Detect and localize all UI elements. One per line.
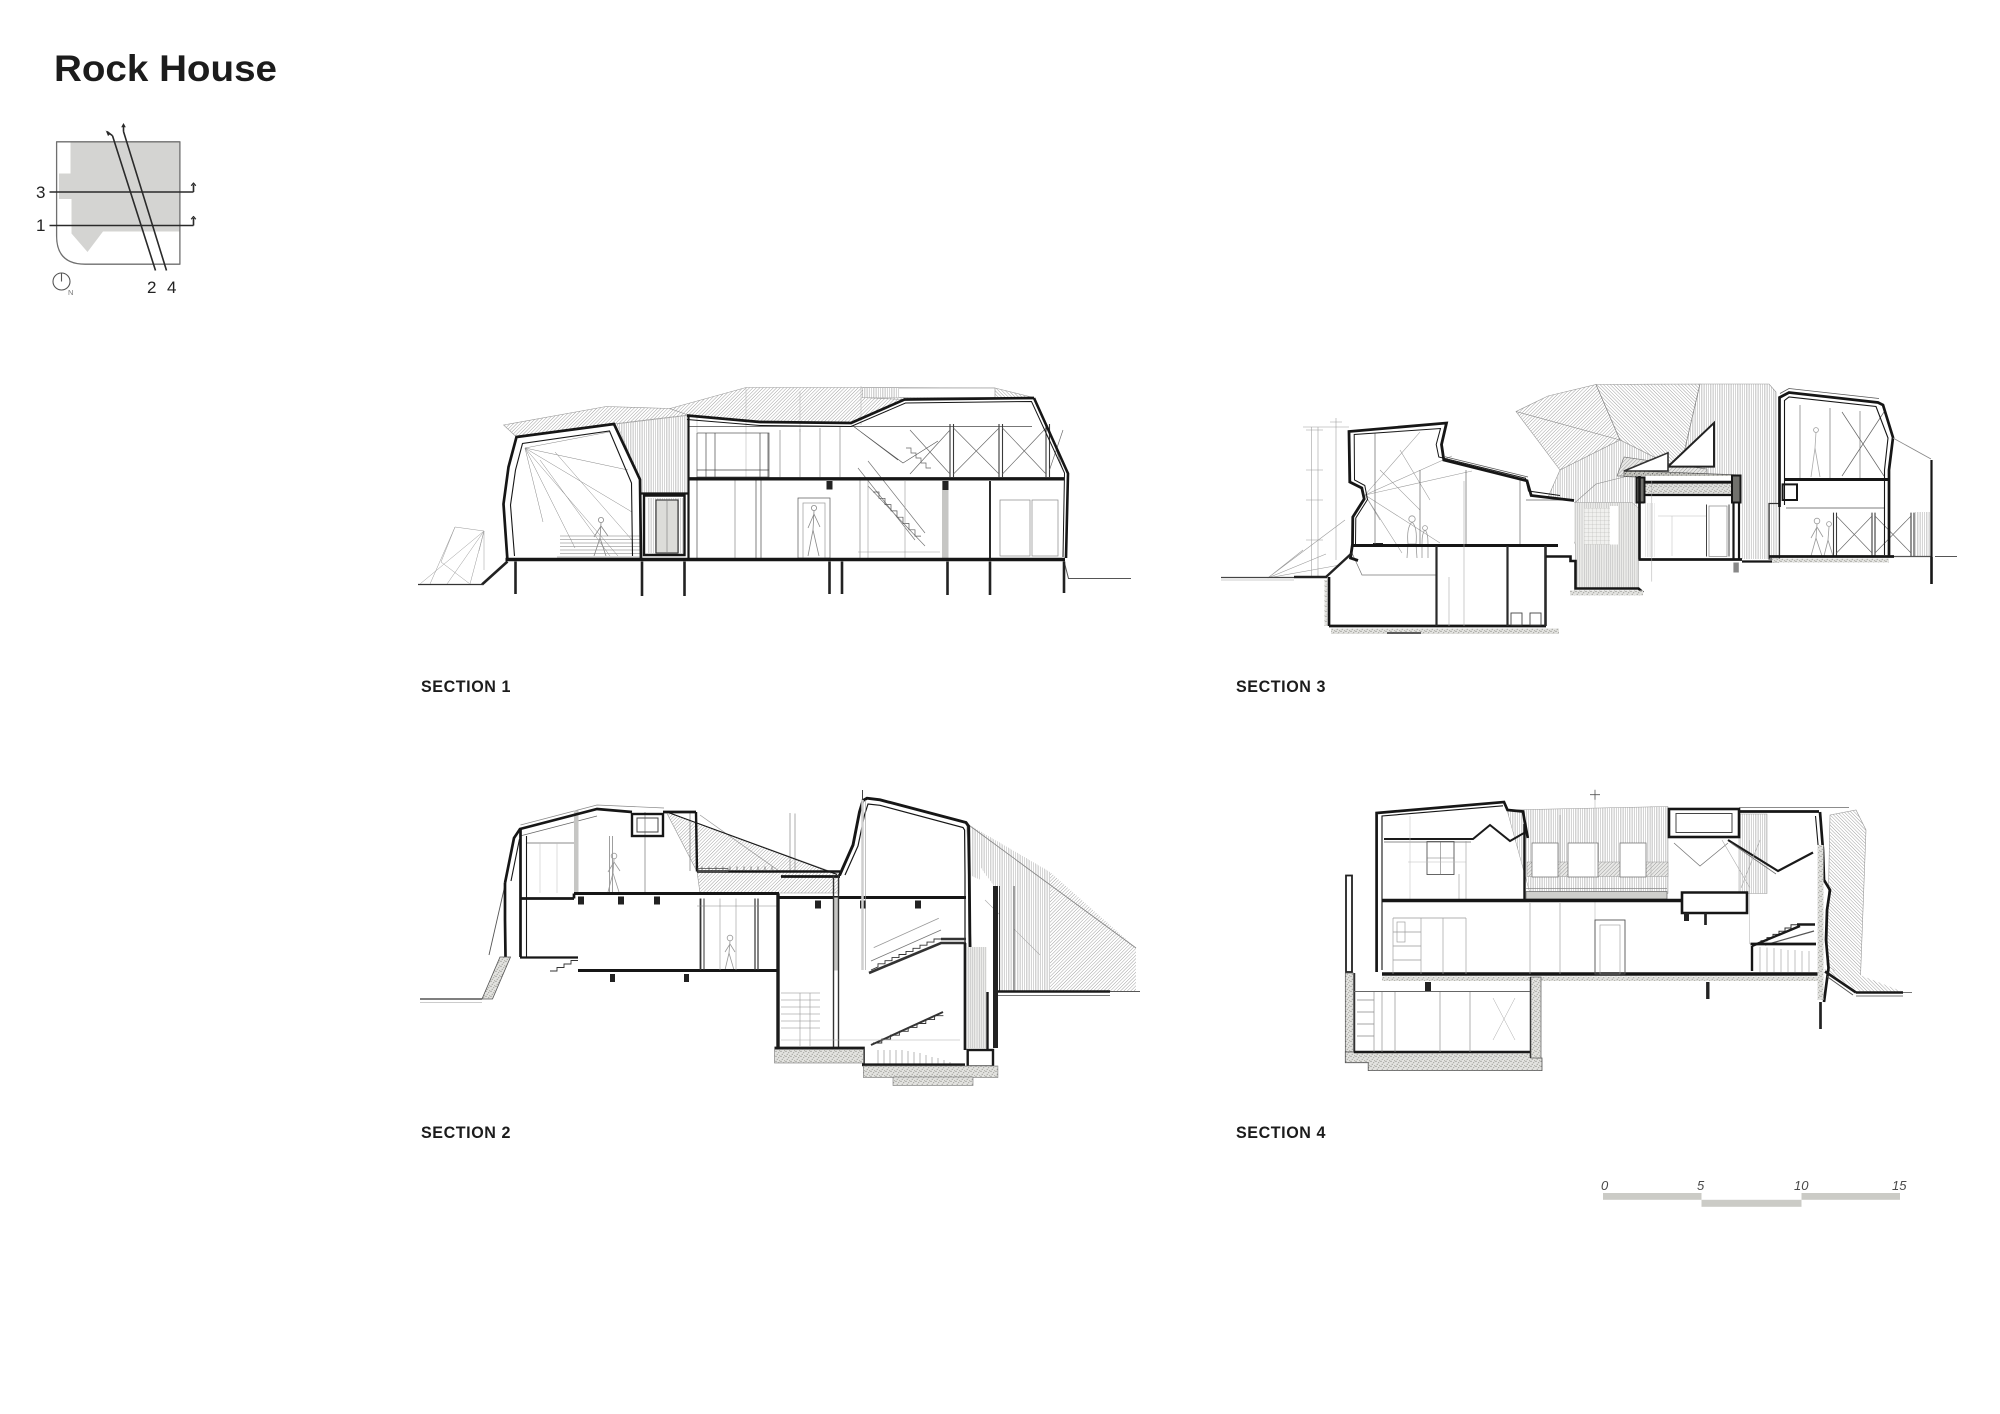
svg-text:2: 2 [147, 278, 156, 297]
svg-text:SECTION 1: SECTION 1 [421, 677, 511, 696]
svg-text:SECTION 4: SECTION 4 [1236, 1123, 1326, 1142]
svg-text:1: 1 [36, 216, 45, 235]
svg-text:SECTION 3: SECTION 3 [1236, 677, 1326, 696]
svg-text:4: 4 [167, 278, 176, 297]
svg-text:10: 10 [1794, 1178, 1809, 1193]
svg-text:N: N [68, 288, 73, 297]
svg-text:5: 5 [1697, 1178, 1705, 1193]
svg-text:15: 15 [1892, 1178, 1907, 1193]
svg-text:3: 3 [36, 183, 45, 202]
svg-text:SECTION 2: SECTION 2 [421, 1123, 511, 1142]
svg-text:0: 0 [1601, 1178, 1609, 1193]
svg-text:Rock House: Rock House [54, 47, 277, 89]
